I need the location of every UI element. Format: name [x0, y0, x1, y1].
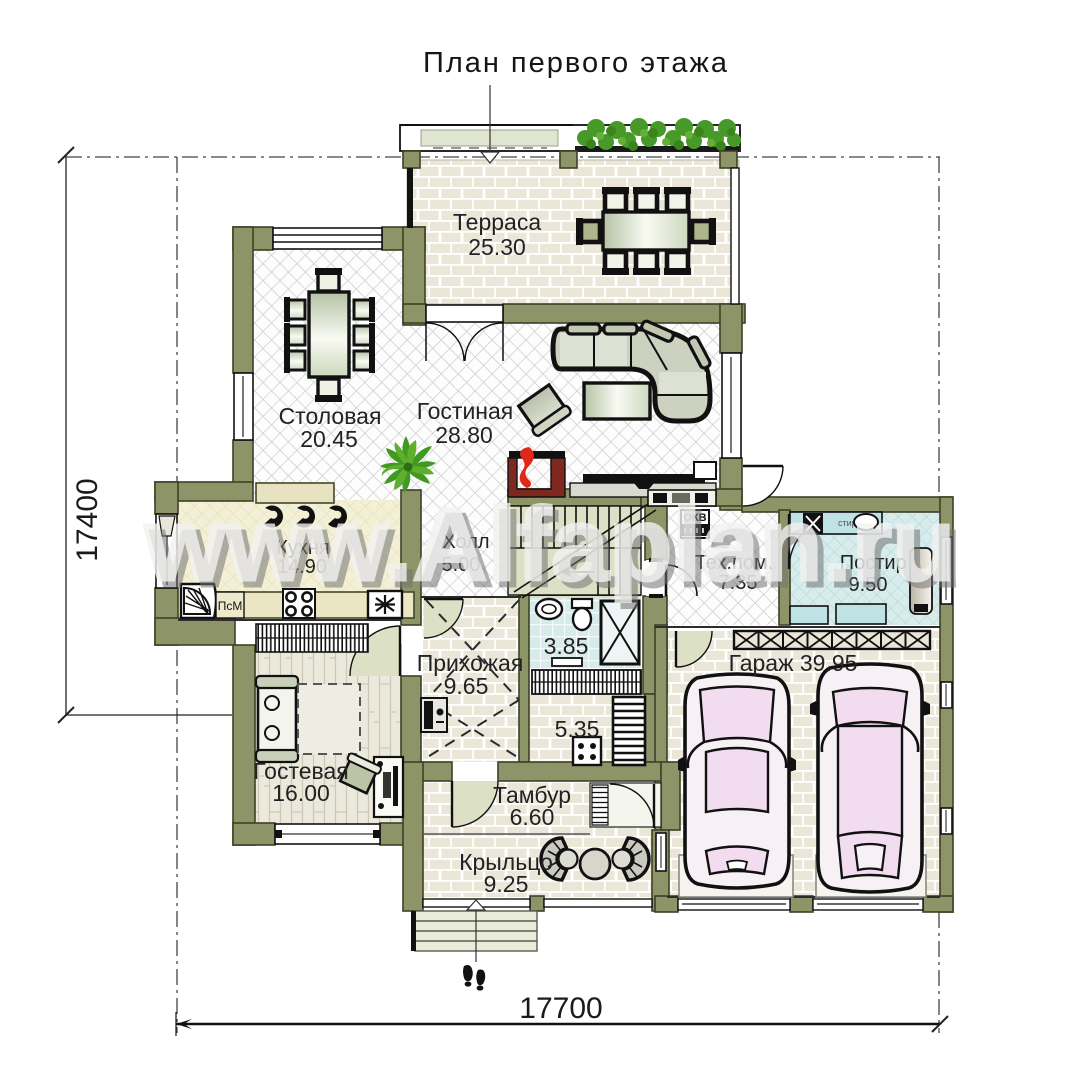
- svg-text:9.65: 9.65: [444, 673, 489, 699]
- svg-text:Гостиная: Гостиная: [417, 398, 514, 424]
- svg-text:17400: 17400: [71, 478, 104, 561]
- svg-text:20.45: 20.45: [300, 426, 358, 452]
- svg-text:www.Alfaplan.ru: www.Alfaplan.ru: [144, 487, 956, 603]
- svg-text:Терраса: Терраса: [453, 209, 541, 235]
- svg-text:9.25: 9.25: [484, 871, 529, 897]
- svg-text:3.85: 3.85: [544, 633, 589, 659]
- svg-text:5.35: 5.35: [555, 716, 600, 742]
- svg-text:28.80: 28.80: [435, 422, 493, 448]
- svg-text:Гараж 39.95: Гараж 39.95: [729, 650, 858, 676]
- svg-text:6.60: 6.60: [510, 804, 555, 830]
- svg-text:25.30: 25.30: [468, 234, 526, 260]
- svg-text:17700: 17700: [519, 992, 602, 1025]
- svg-text:План первого этажа: План первого этажа: [423, 47, 729, 79]
- svg-text:16.00: 16.00: [272, 780, 330, 806]
